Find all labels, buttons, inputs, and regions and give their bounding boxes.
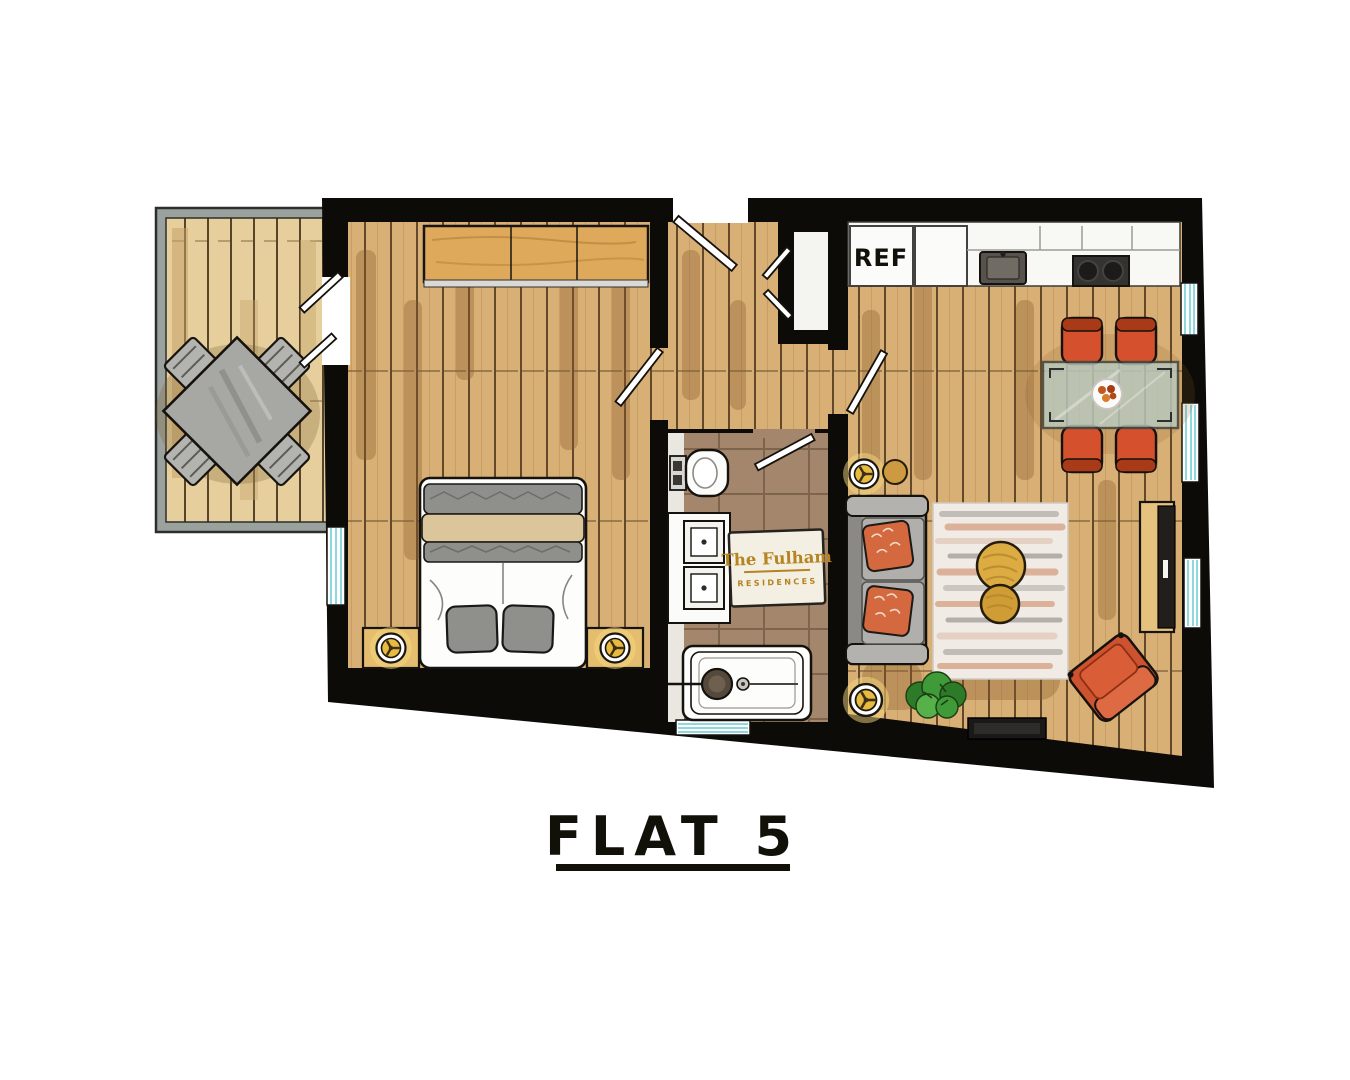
flat-title-text: FLAT 5: [545, 805, 801, 868]
wall-vent: [968, 718, 1046, 739]
dining-chair: [1116, 426, 1156, 472]
table-lamp-icon: [370, 627, 412, 669]
tv-unit: [1140, 502, 1175, 632]
kitchen: REF: [848, 222, 1180, 286]
living-window-1: [1181, 283, 1198, 335]
fridge-label: REF: [854, 244, 908, 272]
hall-closet: [794, 232, 828, 330]
dining-chair: [1116, 318, 1156, 364]
side-lamp-icon: [843, 453, 885, 495]
toilet: [670, 450, 728, 496]
kitchen-cabinet: [915, 226, 967, 286]
bed: [420, 478, 586, 668]
vanity: [668, 513, 730, 623]
plan-title: FLAT 5: [545, 805, 801, 871]
sofa-pillow: [862, 520, 914, 572]
dining-chair: [1062, 426, 1102, 472]
title-underline: [556, 864, 790, 871]
sofa: [846, 496, 928, 664]
nightstand-right: [587, 627, 643, 669]
plaque-line1: The Fulham: [721, 547, 832, 570]
bathtub: [668, 646, 811, 720]
bathroom-window: [676, 720, 750, 735]
burner-icon: [1103, 261, 1123, 281]
entrance-opening: [673, 190, 748, 223]
bedroom-window: [327, 527, 345, 605]
nightstand-left: [363, 627, 419, 669]
sofa-pillow: [862, 585, 913, 636]
rug: [933, 503, 1068, 679]
coffee-table-small: [981, 585, 1019, 623]
dining-chair: [1062, 318, 1102, 364]
table-lamp-icon: [594, 627, 636, 669]
kitchen-sink: [980, 251, 1026, 284]
burner-icon: [1078, 261, 1098, 281]
wardrobe: [424, 226, 648, 287]
pillow: [502, 605, 554, 653]
side-table: [883, 460, 907, 484]
terrace: [156, 208, 344, 532]
fulham-plaque: The Fulham RESIDENCES: [721, 529, 834, 607]
pillow: [446, 605, 498, 653]
floor-plan-page: The Fulham RESIDENCES REF: [0, 0, 1350, 1080]
cooktop: [1073, 256, 1129, 286]
dining-table: [1043, 362, 1178, 428]
fruit-plate: [1092, 379, 1122, 409]
floor-plan-image: The Fulham RESIDENCES REF: [0, 0, 1350, 1080]
floor-lamp-icon: [843, 677, 889, 723]
living-window-3: [1184, 558, 1201, 628]
